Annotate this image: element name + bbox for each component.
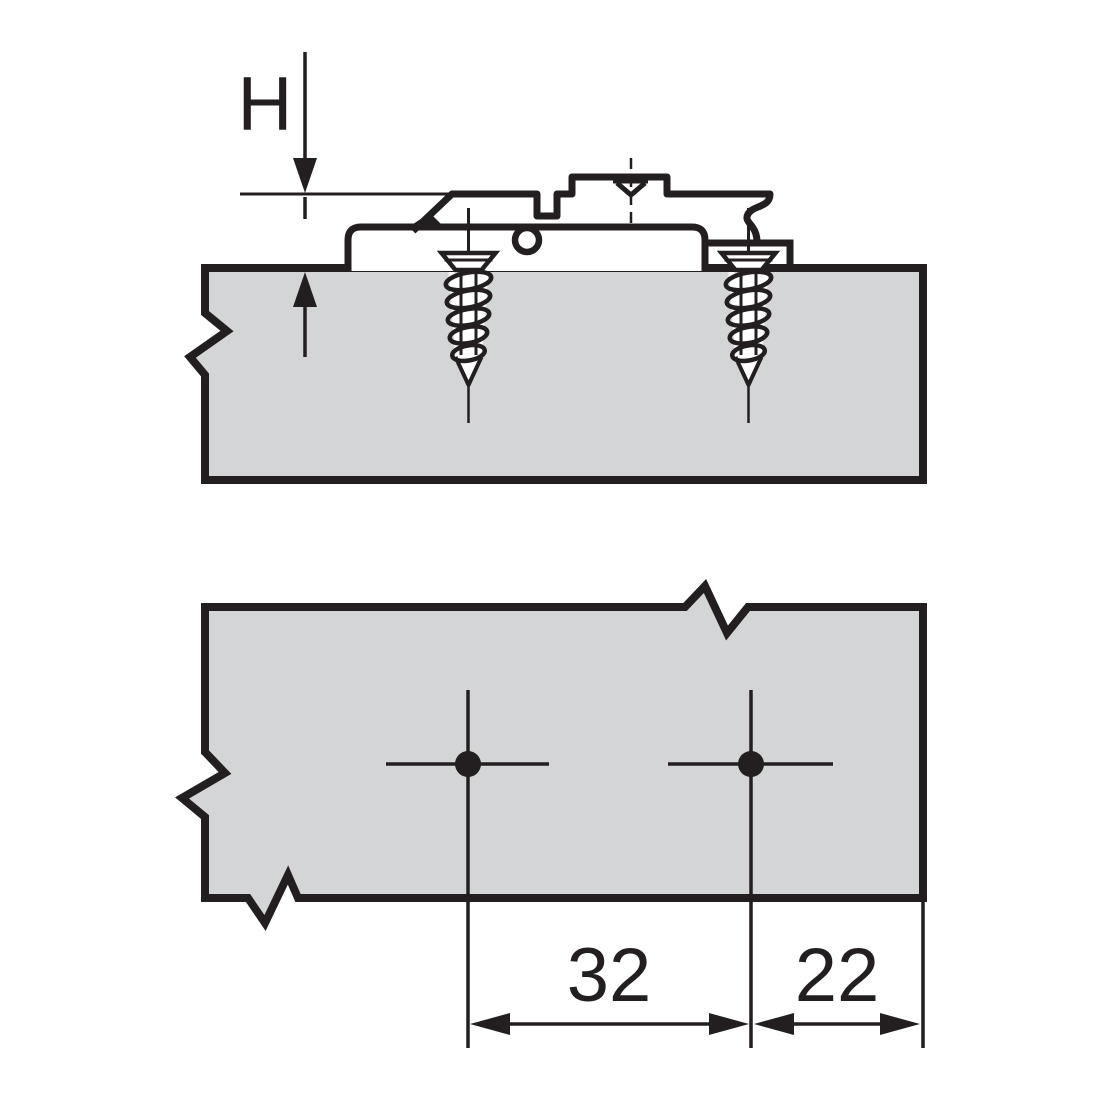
panel-plan bbox=[182, 586, 923, 923]
dimension-32-label: 32 bbox=[567, 933, 652, 1018]
arrow-right bbox=[880, 1013, 920, 1035]
arrow-left bbox=[754, 1013, 794, 1035]
drill-point bbox=[455, 751, 481, 777]
diagram-svg: H 32 bbox=[0, 0, 1107, 1106]
arrow-down bbox=[293, 158, 317, 193]
arrow-right bbox=[709, 1013, 749, 1035]
plate-hole bbox=[515, 228, 539, 252]
height-dimension-label: H bbox=[238, 62, 293, 147]
technical-diagram: H 32 bbox=[0, 0, 1107, 1106]
arrow-left bbox=[470, 1013, 510, 1035]
drill-point bbox=[738, 751, 764, 777]
dimension-22: 22 bbox=[754, 933, 920, 1035]
plan-view: 32 22 bbox=[182, 586, 923, 1048]
dimension-32: 32 bbox=[470, 933, 749, 1035]
dimension-22-label: 22 bbox=[795, 933, 880, 1018]
side-view: H bbox=[190, 52, 923, 480]
